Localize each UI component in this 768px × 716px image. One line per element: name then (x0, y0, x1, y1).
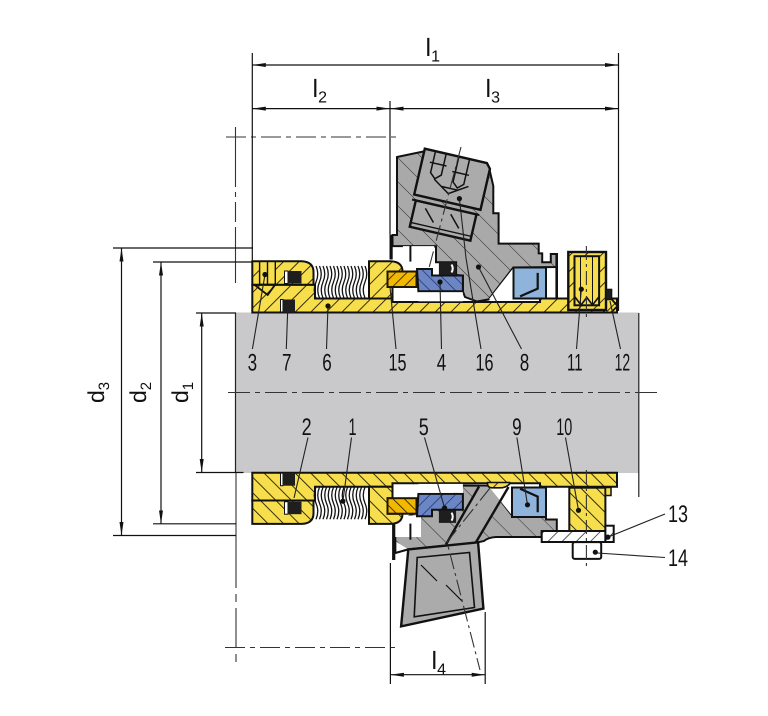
svg-text:1: 1 (349, 414, 357, 441)
svg-text:6: 6 (322, 350, 332, 377)
svg-text:10: 10 (556, 414, 572, 441)
svg-text:14: 14 (668, 545, 688, 572)
svg-text:4: 4 (437, 350, 447, 377)
svg-text:13: 13 (668, 501, 688, 528)
svg-text:16: 16 (476, 350, 494, 377)
svg-text:15: 15 (389, 350, 407, 377)
svg-text:11: 11 (567, 350, 583, 377)
svg-text:9: 9 (512, 414, 522, 441)
svg-text:12: 12 (615, 350, 631, 377)
svg-text:2: 2 (302, 414, 312, 441)
svg-text:5: 5 (419, 414, 429, 441)
svg-text:3: 3 (248, 350, 258, 377)
svg-text:7: 7 (282, 350, 292, 377)
svg-text:8: 8 (520, 350, 530, 377)
